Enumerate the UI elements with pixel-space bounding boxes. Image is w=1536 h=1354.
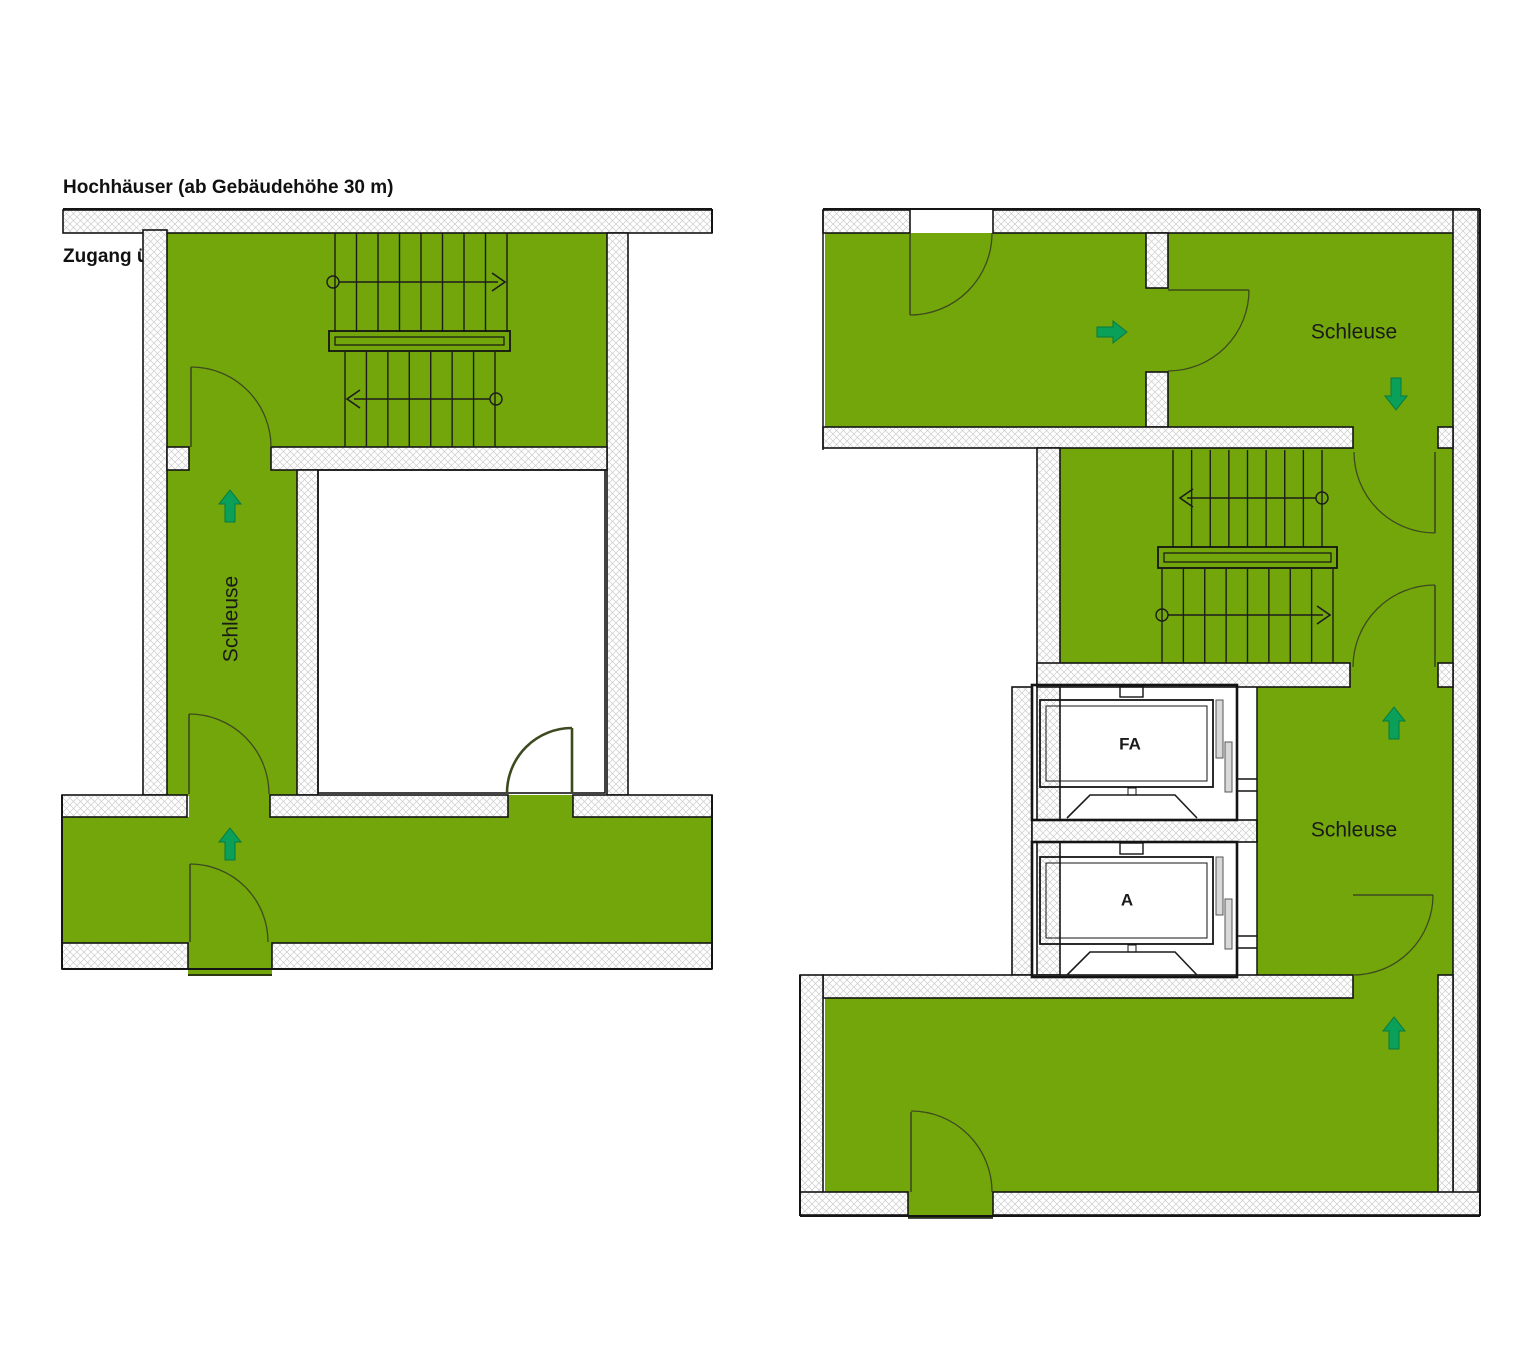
door-opening [189,795,270,818]
elevator-label-fa: FA [1119,735,1141,754]
wall-stub [1438,663,1453,687]
wall-segment [1037,663,1350,687]
schleuse-label: Schleuse [220,576,243,662]
elevator-guide [1067,795,1197,818]
exit-opening [908,1192,993,1218]
wall-segment [573,795,712,817]
wall-segment [167,447,189,470]
door-arc [507,728,572,793]
door-opening [508,795,573,818]
elevator-tick [1128,945,1136,952]
wall-segment [270,795,508,817]
stairwell-room [1060,448,1453,663]
exit-opening [188,943,272,976]
bottom-wall [62,943,188,969]
floor-plan-diagram: Hochhäuser (ab Gebäudehöhe 30 m) Zugang … [0,0,1536,1354]
east-wall [607,233,628,795]
elevator-door-rail [1216,700,1223,758]
west-wall [143,230,167,795]
door-opening [1353,975,1438,998]
elevator-notch [1120,843,1143,854]
bottom-room [825,998,1438,1192]
elevator-shaft-a [1032,842,1237,977]
bottom-wall [272,943,712,969]
door-opening [1146,288,1168,372]
wall-segment [823,975,1353,998]
wall-segment [271,447,607,470]
room-outline [318,470,605,793]
west-outer-wall [800,975,823,1215]
elevator-door-rail [1225,899,1232,949]
top-wall [993,210,1480,233]
bottom-wall [993,1192,1480,1215]
wall-segment [62,795,187,817]
wall-segment [1146,233,1168,288]
elevator-door-rail [1225,742,1232,792]
shaft-divider [1032,820,1257,842]
schleuse-label: Schleuse [1311,819,1397,842]
top-wall [823,210,910,233]
wall-segment [1438,975,1453,1215]
bottom-wall [800,1192,908,1215]
elevator-label-a: A [1121,891,1133,910]
wall-segment [823,427,1353,448]
schleuse-label: Schleuse [1311,321,1397,344]
door-opening [189,447,271,471]
door-opening [1350,663,1438,687]
elevator-guide [1067,952,1197,975]
shaft-west-wall [1012,687,1032,975]
bottom-corridor [63,817,712,943]
east-outer-wall [1453,210,1478,1216]
elevator-door-rail [1216,857,1223,915]
wall-stub [1438,427,1453,448]
wall-segment [1146,372,1168,427]
floor-plans-canvas: SchleuseSchleuseSchleuseFAA [0,0,1536,1354]
door-opening [1353,427,1438,448]
stairwell-room [165,233,607,447]
elevator-tick [1128,788,1136,795]
corridor-east-wall [297,470,318,795]
